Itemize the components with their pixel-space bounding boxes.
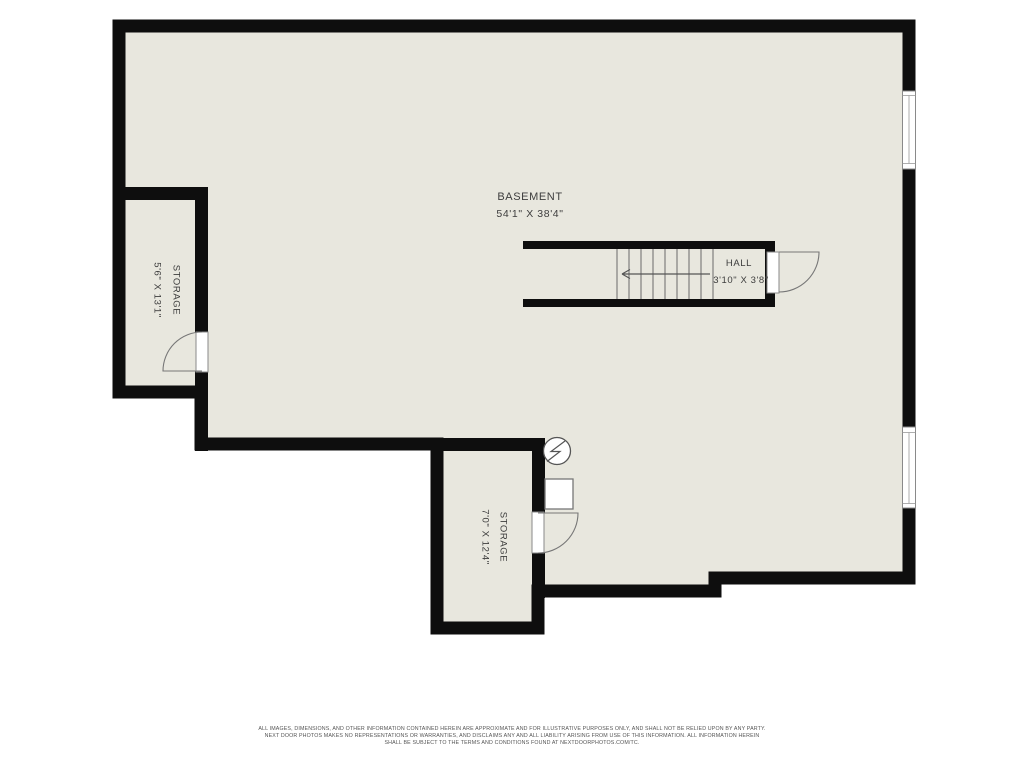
window-lower xyxy=(903,427,916,508)
basement-room-label: BASEMENT xyxy=(497,191,562,203)
window-upper xyxy=(903,91,916,169)
storage-bottom-right-wall-lower xyxy=(532,553,545,598)
storage-left-right-wall-upper xyxy=(195,187,208,333)
basement-room-dims: 54'1" X 38'4" xyxy=(496,208,563,220)
disclaimer-footer: ALL IMAGES, DIMENSIONS, AND OTHER INFORM… xyxy=(0,726,1024,747)
storage-left-room-dims: 5'6" X 13'1" xyxy=(152,262,163,318)
appliance-square-icon xyxy=(545,479,573,509)
floorplan-svg: BASEMENT 54'1" X 38'4" HALL 3'10" X 3'8"… xyxy=(0,0,1024,768)
floorplan-page: BASEMENT 54'1" X 38'4" HALL 3'10" X 3'8"… xyxy=(0,0,1024,768)
hall-room-label: HALL xyxy=(726,258,752,269)
disclaimer-line-1: ALL IMAGES, DIMENSIONS, AND OTHER INFORM… xyxy=(0,726,1024,733)
disclaimer-line-3: SHALL BE SUBJECT TO THE TERMS AND CONDIT… xyxy=(0,740,1024,747)
storage-left-room-label: STORAGE xyxy=(171,265,182,315)
storage-bottom-door-leaf xyxy=(532,512,544,553)
storage-bottom-room-label: STORAGE xyxy=(498,512,509,562)
disclaimer-line-2: NEXT DOOR PHOTOS MAKES NO REPRESENTATION… xyxy=(0,733,1024,740)
hall-room-dims: 3'10" X 3'8" xyxy=(713,275,769,286)
storage-left-top-wall xyxy=(113,187,207,200)
stair-wall-bottom xyxy=(523,299,773,307)
stair-wall-top xyxy=(523,241,773,249)
hall-door-leaf xyxy=(767,252,779,293)
storage-bottom-top-wall xyxy=(431,438,545,451)
electrical-meter-icon xyxy=(544,438,571,465)
storage-left-right-wall-lower xyxy=(195,371,208,451)
exterior-walls xyxy=(119,26,909,628)
storage-bottom-room-dims: 7'0" X 12'4" xyxy=(480,509,491,565)
storage-left-door-leaf xyxy=(196,332,208,372)
